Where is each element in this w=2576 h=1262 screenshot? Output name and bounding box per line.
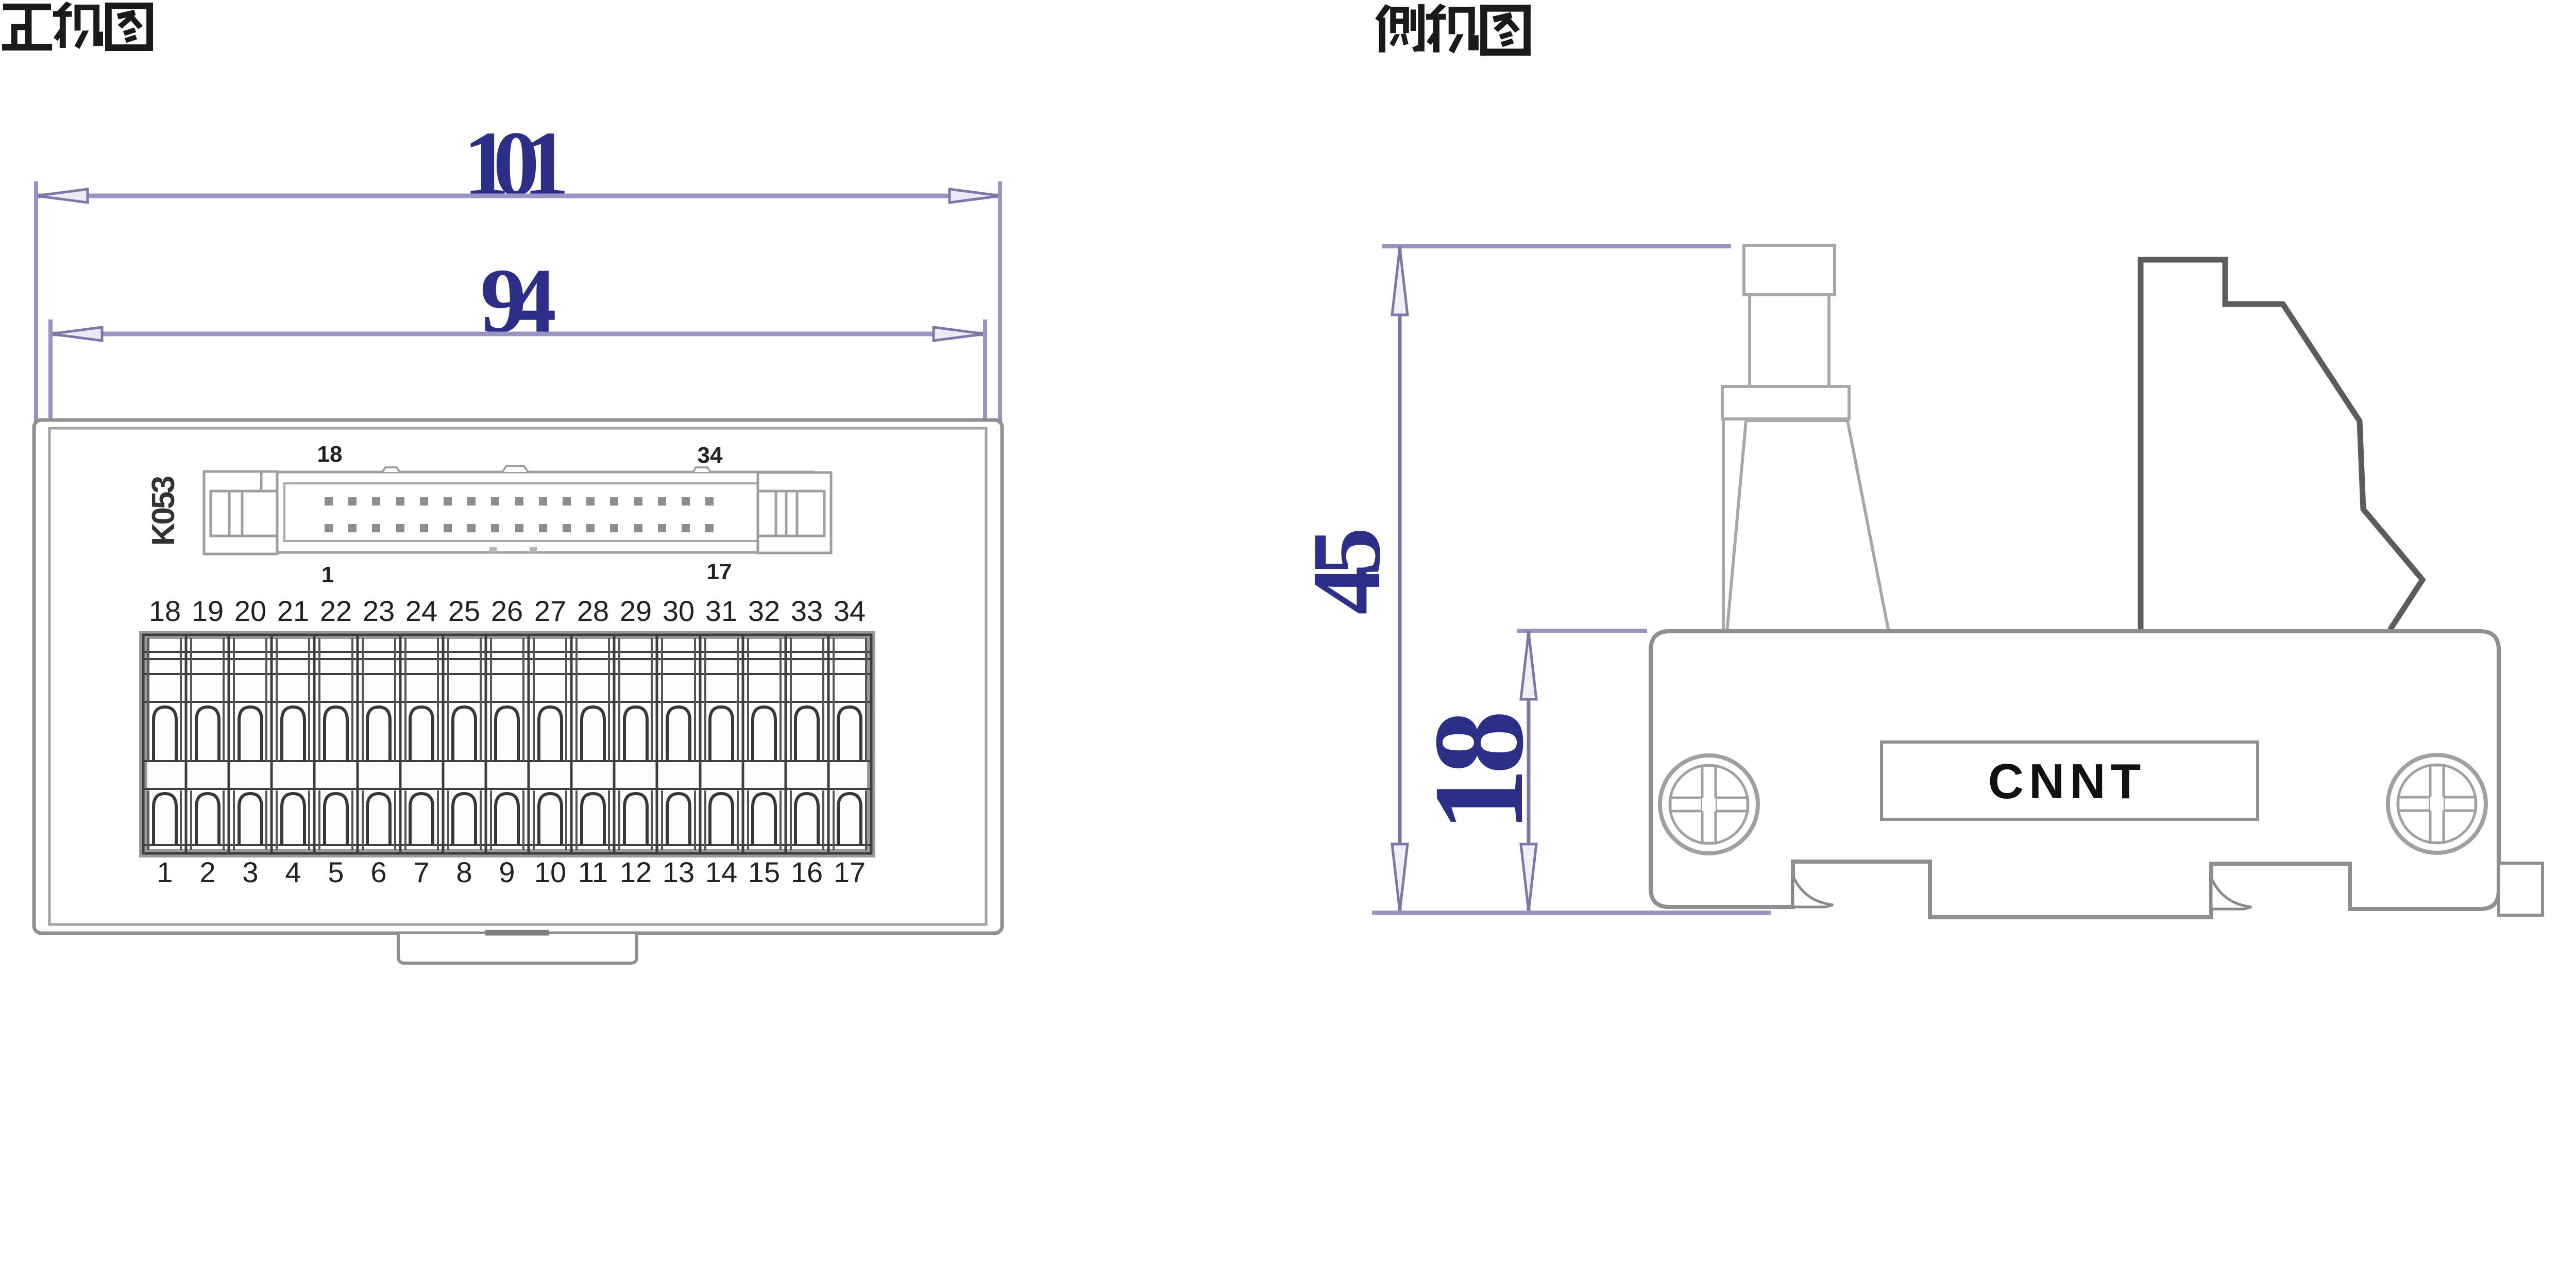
svg-text:22: 22 [320, 595, 352, 627]
svg-text:34: 34 [834, 595, 866, 627]
svg-text:20: 20 [234, 595, 266, 627]
svg-text:27: 27 [534, 595, 566, 627]
svg-text:23: 23 [363, 595, 395, 627]
svg-text:13: 13 [663, 856, 694, 888]
svg-text:33: 33 [791, 595, 823, 627]
svg-text:11: 11 [578, 856, 608, 888]
svg-text:CNNT: CNNT [1988, 754, 2146, 809]
svg-text:25: 25 [448, 595, 480, 627]
svg-text:24: 24 [405, 595, 437, 627]
svg-text:10: 10 [534, 856, 566, 888]
svg-text:7: 7 [413, 856, 429, 888]
svg-text:6: 6 [370, 856, 386, 888]
svg-text:18: 18 [1408, 714, 1550, 832]
svg-text:1: 1 [321, 562, 334, 587]
svg-text:12: 12 [620, 856, 652, 888]
svg-text:1: 1 [157, 856, 173, 888]
svg-text:5: 5 [328, 856, 344, 888]
svg-text:K053: K053 [146, 476, 181, 546]
svg-text:9: 9 [499, 856, 515, 888]
svg-text:8: 8 [456, 856, 472, 888]
svg-text:16: 16 [791, 856, 823, 888]
svg-text:28: 28 [577, 595, 609, 627]
svg-text:29: 29 [620, 595, 652, 627]
svg-text:17: 17 [834, 856, 866, 888]
svg-text:21: 21 [277, 595, 309, 627]
svg-text:30: 30 [663, 595, 694, 627]
svg-text:31: 31 [705, 595, 737, 627]
svg-text:26: 26 [491, 595, 523, 627]
svg-text:3: 3 [242, 856, 258, 888]
svg-text:2: 2 [199, 856, 215, 888]
svg-text:32: 32 [748, 595, 780, 627]
svg-text:19: 19 [192, 595, 224, 627]
svg-text:34: 34 [698, 443, 723, 468]
svg-text:4: 4 [285, 856, 301, 888]
svg-text:18: 18 [149, 595, 181, 627]
svg-text:45: 45 [1293, 530, 1401, 615]
svg-text:15: 15 [748, 856, 780, 888]
svg-text:14: 14 [705, 856, 737, 888]
svg-text:18: 18 [317, 442, 343, 467]
svg-text:17: 17 [707, 559, 732, 584]
svg-text:101: 101 [463, 112, 565, 215]
